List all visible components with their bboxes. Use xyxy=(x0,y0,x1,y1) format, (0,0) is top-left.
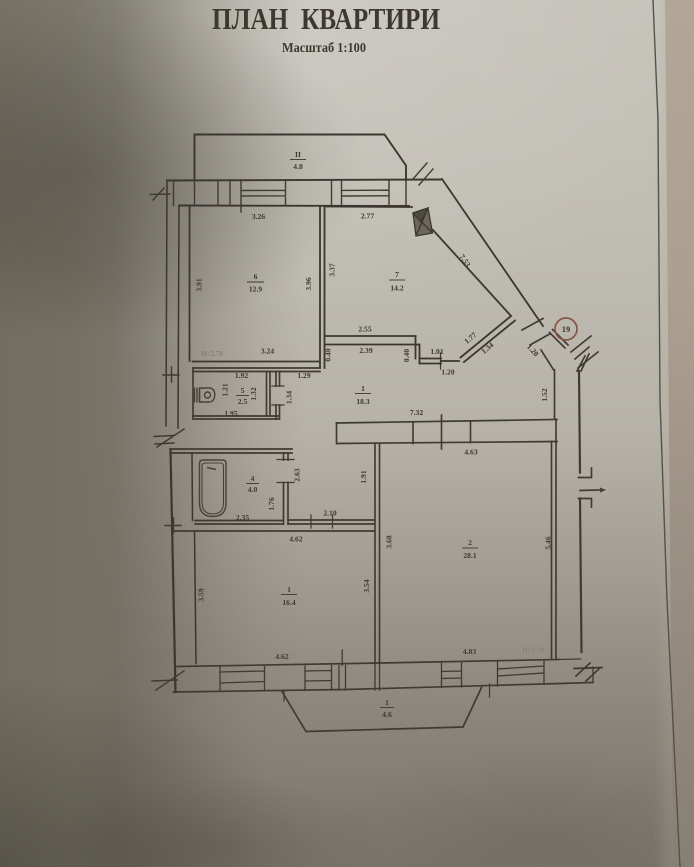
svg-text:4.0: 4.0 xyxy=(248,485,258,494)
svg-text:1.32: 1.32 xyxy=(249,387,258,400)
svg-text:4.62: 4.62 xyxy=(275,652,288,661)
svg-text:1.34: 1.34 xyxy=(479,340,495,356)
svg-text:1.95: 1.95 xyxy=(224,409,237,418)
svg-text:3.91: 3.91 xyxy=(195,278,204,291)
svg-text:2.39: 2.39 xyxy=(359,346,372,355)
svg-text:4.62: 4.62 xyxy=(289,535,302,544)
svg-text:28.1: 28.1 xyxy=(463,551,476,560)
svg-text:3.24: 3.24 xyxy=(261,347,274,356)
svg-text:2.77: 2.77 xyxy=(361,212,374,221)
svg-text:16.4: 16.4 xyxy=(282,598,295,607)
svg-text:1.34: 1.34 xyxy=(285,391,294,404)
svg-text:3.59: 3.59 xyxy=(197,588,206,601)
svg-text:1.77: 1.77 xyxy=(462,330,478,346)
svg-text:1.91: 1.91 xyxy=(359,470,368,483)
svg-text:1.20: 1.20 xyxy=(525,342,541,358)
svg-text:0.40: 0.40 xyxy=(324,348,333,361)
svg-text:3.96: 3.96 xyxy=(304,277,313,290)
svg-text:3.26: 3.26 xyxy=(252,212,265,221)
svg-text:1: 1 xyxy=(287,585,291,594)
svg-text:II: II xyxy=(295,150,301,159)
svg-text:2.55: 2.55 xyxy=(358,325,371,334)
svg-text:2.5: 2.5 xyxy=(238,397,248,406)
svg-text:1.01: 1.01 xyxy=(430,347,443,356)
svg-text:3.54: 3.54 xyxy=(362,579,371,592)
svg-text:1.20: 1.20 xyxy=(441,368,454,377)
svg-text:2.63: 2.63 xyxy=(293,468,302,481)
svg-text:1.21: 1.21 xyxy=(221,383,230,396)
svg-text:7.32: 7.32 xyxy=(410,408,423,417)
svg-text:1: 1 xyxy=(361,384,365,393)
svg-text:5: 5 xyxy=(241,386,245,395)
svg-text:1: 1 xyxy=(385,698,389,707)
svg-text:1.52: 1.52 xyxy=(540,388,549,401)
svg-text:2: 2 xyxy=(468,538,472,547)
svg-text:3.37: 3.37 xyxy=(328,263,337,276)
svg-text:5.46: 5.46 xyxy=(544,536,553,549)
svg-text:19: 19 xyxy=(562,324,571,334)
svg-text:1.76: 1.76 xyxy=(267,497,276,510)
svg-text:7.53: 7.53 xyxy=(458,253,473,269)
svg-text:3.68: 3.68 xyxy=(385,535,394,548)
svg-text:4.6: 4.6 xyxy=(382,710,392,719)
svg-text:4.8: 4.8 xyxy=(293,162,303,171)
svg-text:14.2: 14.2 xyxy=(390,284,403,293)
svg-text:4.63: 4.63 xyxy=(464,448,477,457)
svg-text:4.83: 4.83 xyxy=(463,647,476,656)
svg-text:18.3: 18.3 xyxy=(356,397,369,406)
svg-text:4: 4 xyxy=(251,474,255,483)
svg-text:12.9: 12.9 xyxy=(249,285,262,294)
svg-text:6: 6 xyxy=(254,272,258,281)
svg-text:Н=2.70: Н=2.70 xyxy=(201,350,223,358)
svg-text:Н=2.70: Н=2.70 xyxy=(522,647,544,655)
svg-text:1.92: 1.92 xyxy=(235,371,248,380)
svg-text:Масштаб 1:100: Масштаб 1:100 xyxy=(282,41,366,56)
svg-text:2.35: 2.35 xyxy=(236,513,249,522)
svg-text:0.40: 0.40 xyxy=(402,349,411,362)
svg-text:7: 7 xyxy=(395,270,399,279)
svg-text:1.29: 1.29 xyxy=(297,371,310,380)
svg-text:ПЛАН КВАРТИРИ: ПЛАН КВАРТИРИ xyxy=(212,1,440,36)
svg-text:2.10: 2.10 xyxy=(323,509,336,518)
